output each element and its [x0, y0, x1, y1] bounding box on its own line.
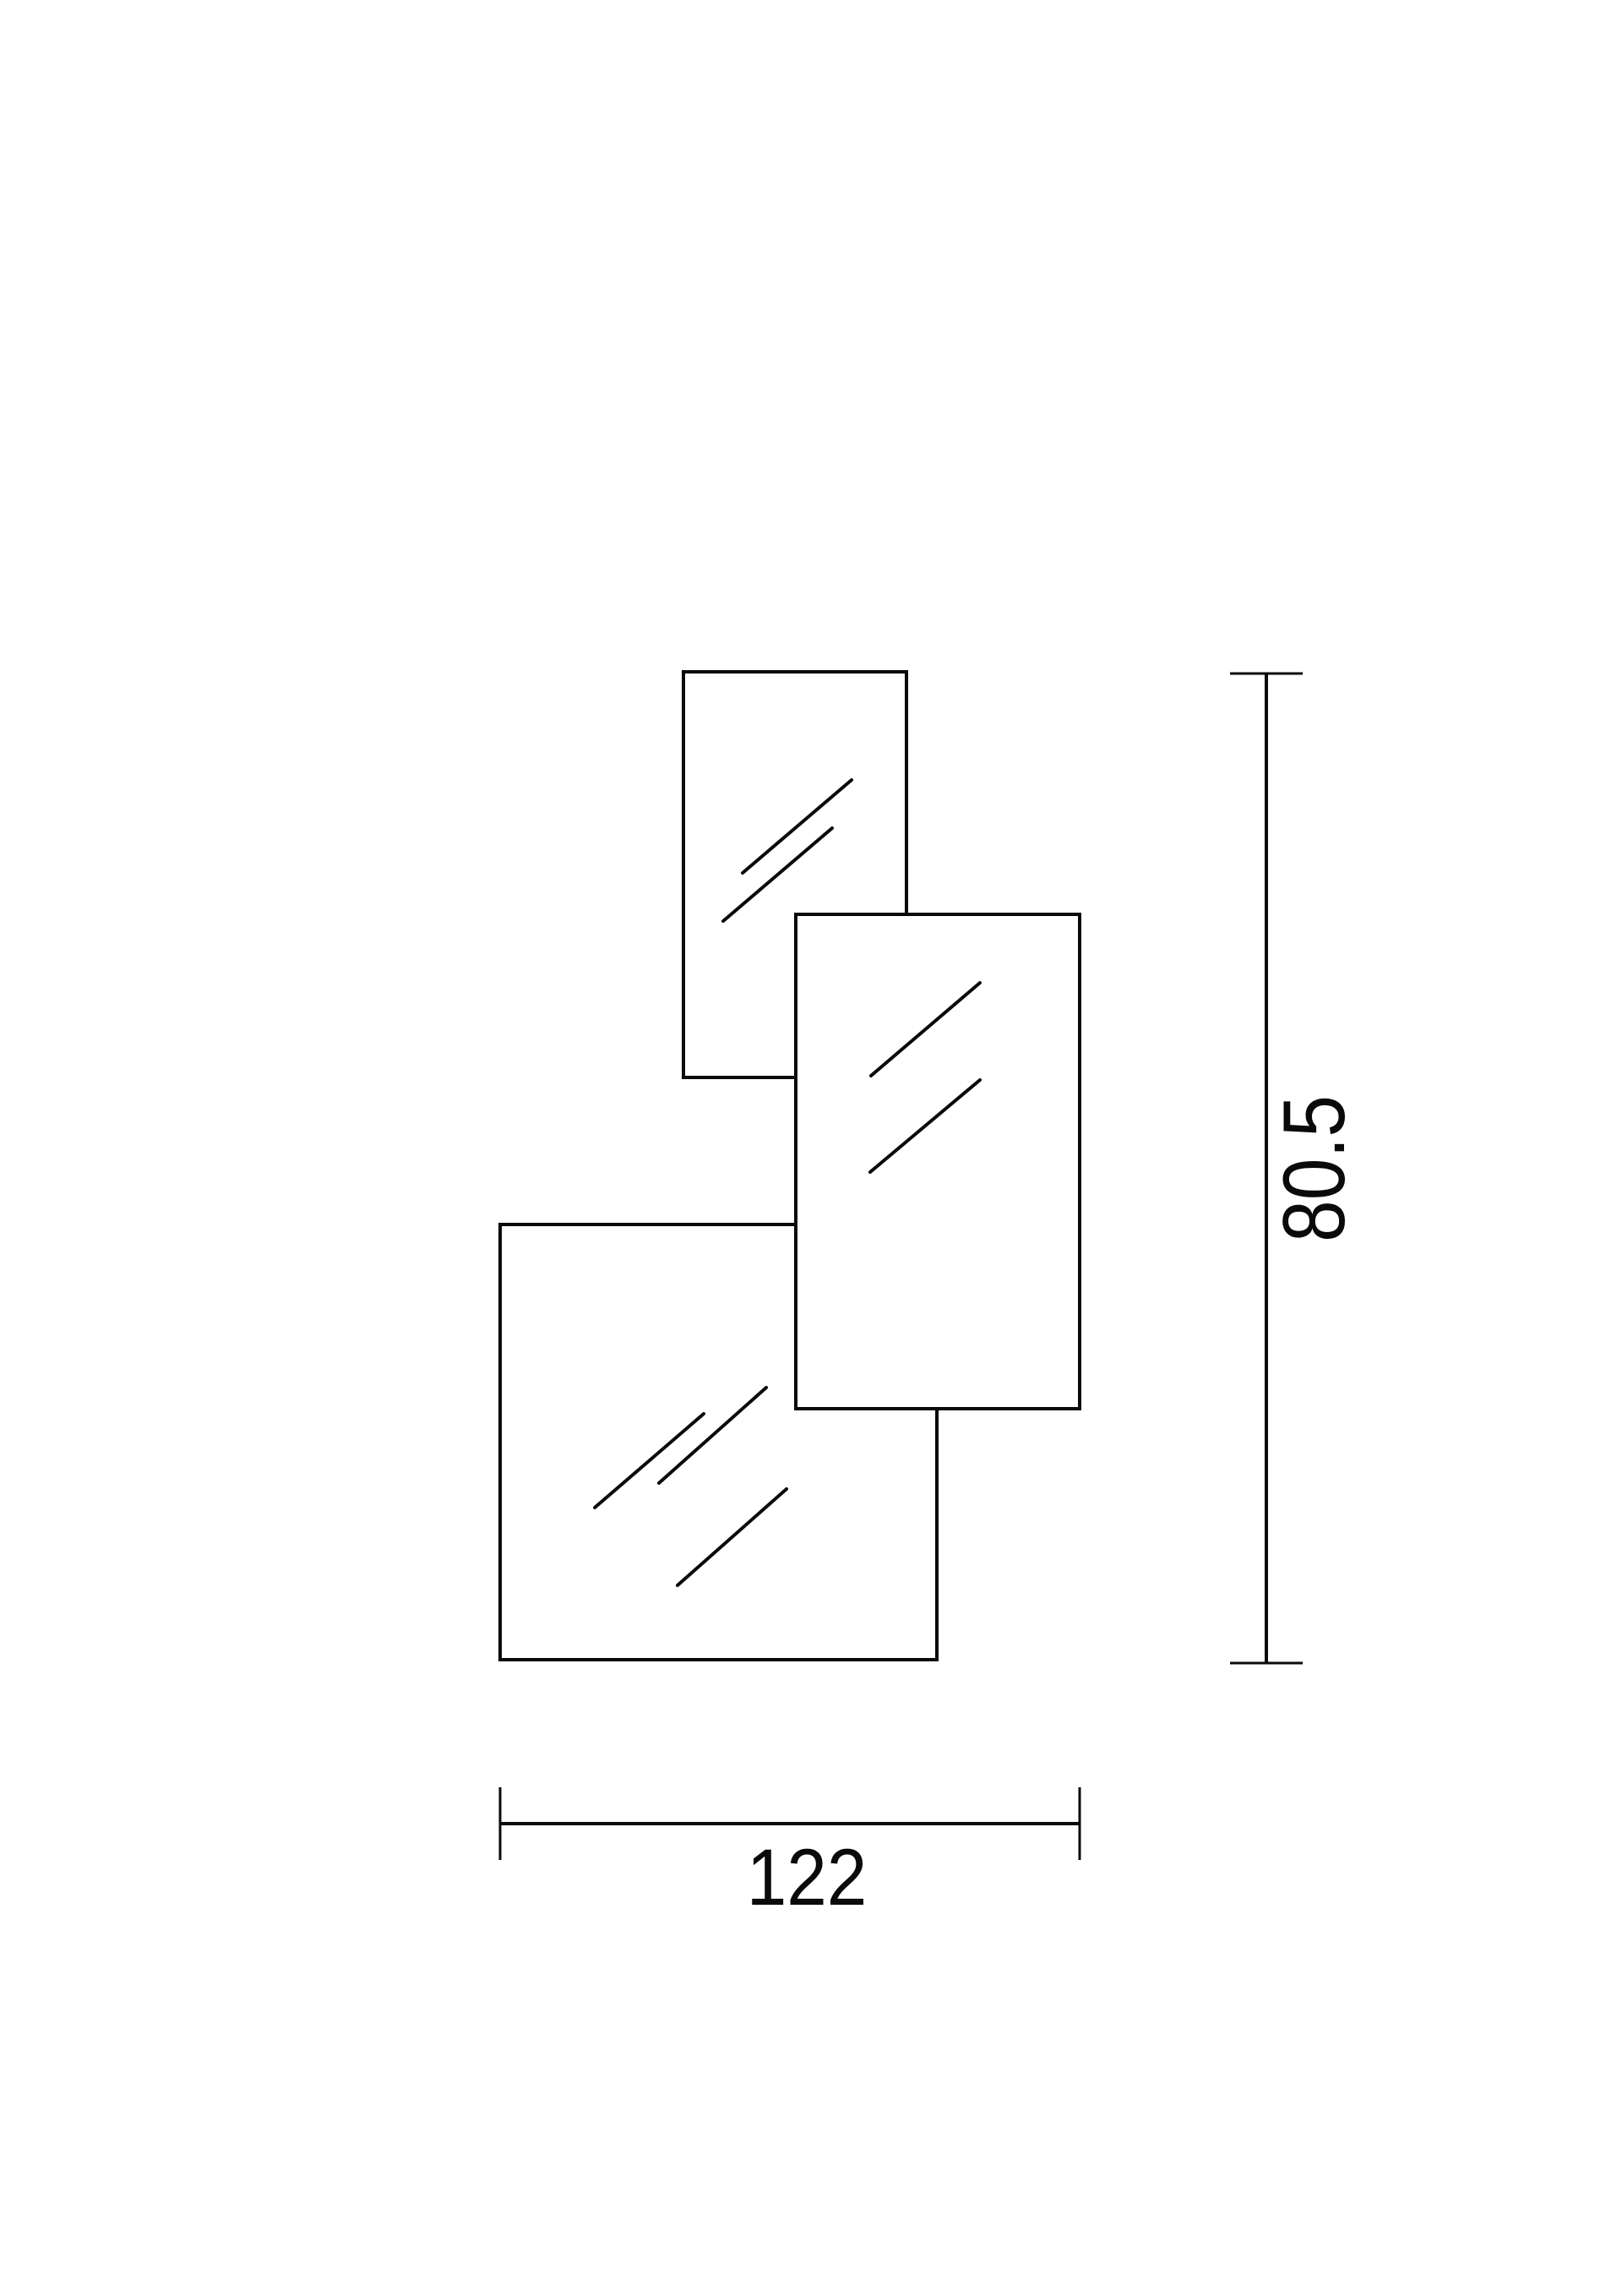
- height-dimension-label: 80.5: [1265, 1095, 1363, 1242]
- technical-drawing-page: 80.5 122: [0, 0, 1622, 2296]
- glass-panels-layer: [500, 672, 1080, 1660]
- dimension-drawing: 80.5 122: [0, 0, 1622, 2296]
- width-dimension-label: 122: [747, 1833, 868, 1922]
- panel-middle: [796, 914, 1080, 1409]
